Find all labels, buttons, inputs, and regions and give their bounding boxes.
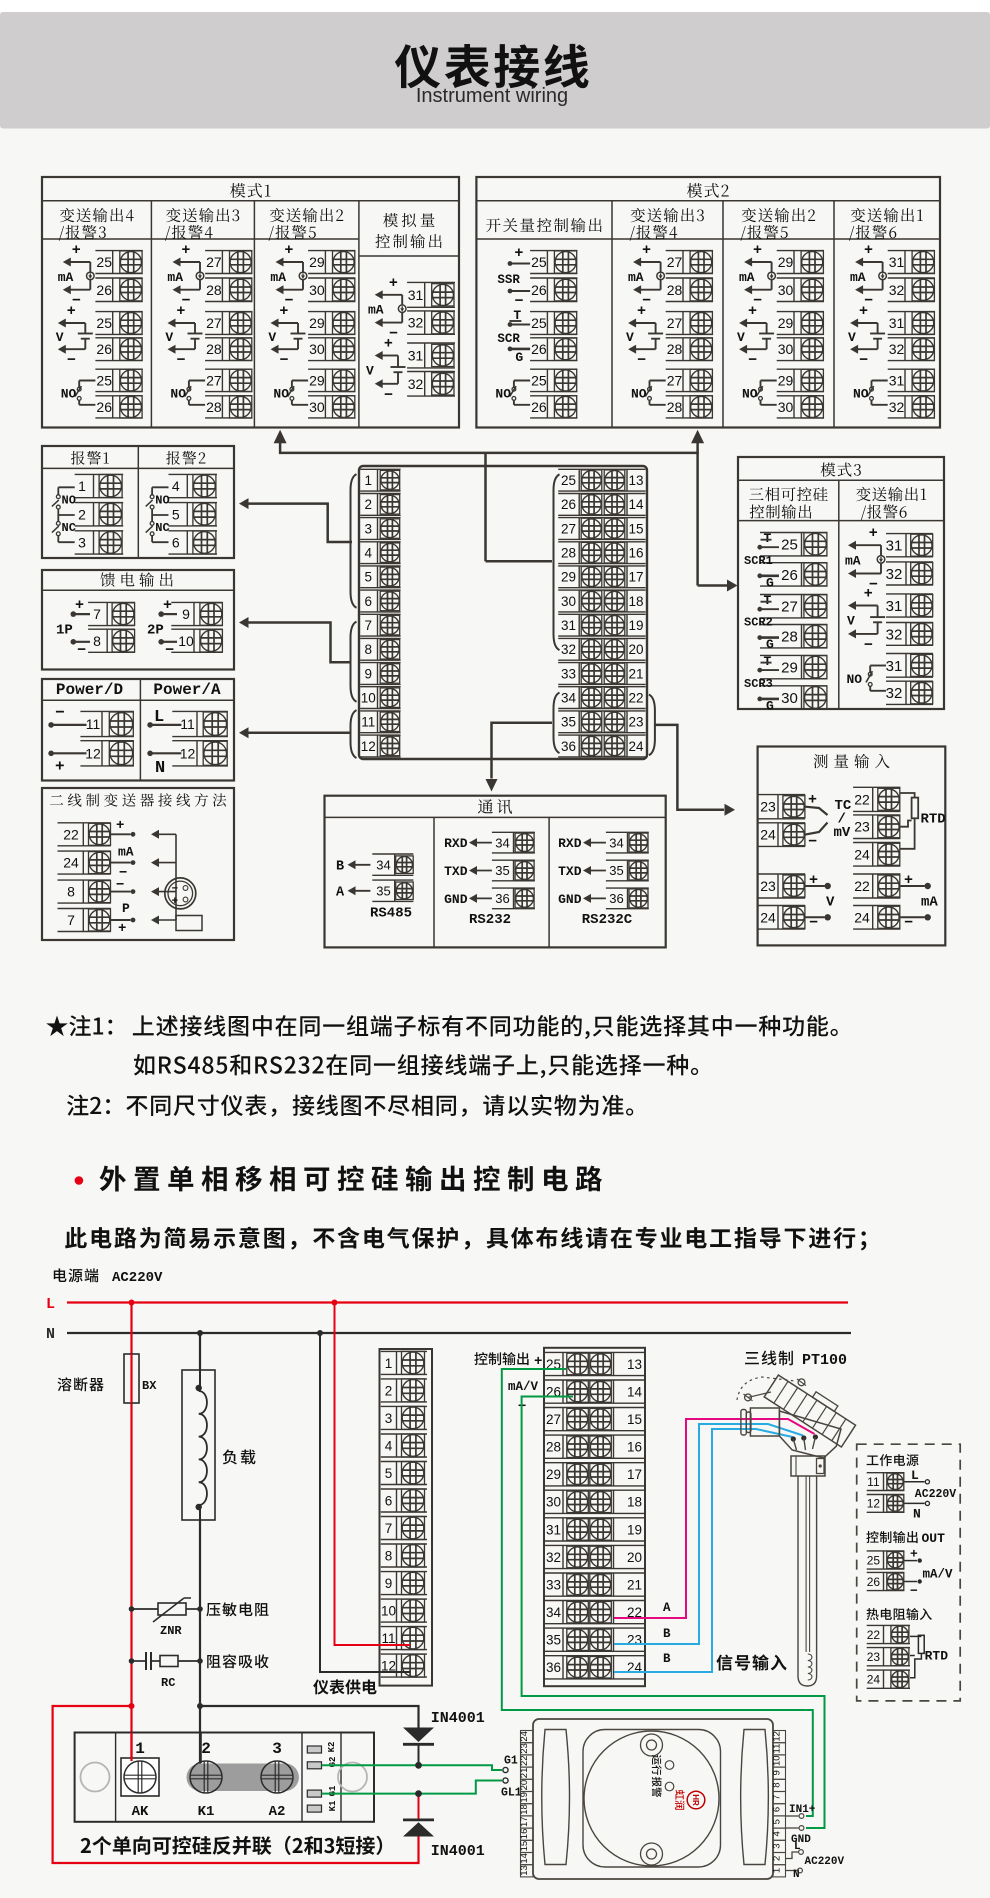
svg-text:16: 16 [627, 1440, 642, 1455]
svg-text:1: 1 [135, 1740, 145, 1758]
svg-text:28: 28 [546, 1440, 561, 1455]
svg-text:−: − [55, 704, 65, 722]
svg-text:29: 29 [781, 660, 798, 677]
svg-text:8: 8 [365, 642, 373, 657]
svg-text:32: 32 [408, 376, 424, 392]
svg-text:SSR: SSR [497, 273, 520, 287]
svg-text:7: 7 [385, 1521, 393, 1536]
svg-text:−: − [67, 352, 76, 369]
svg-text:5: 5 [365, 570, 373, 585]
svg-text:NO: NO [62, 494, 76, 508]
svg-text:G: G [766, 575, 774, 590]
svg-text:22: 22 [854, 878, 870, 894]
svg-text:4: 4 [365, 546, 373, 561]
svg-text:27: 27 [781, 599, 798, 616]
svg-text:−: − [808, 834, 817, 851]
svg-text:32: 32 [889, 282, 905, 298]
svg-text:+: + [808, 792, 817, 809]
svg-text:25: 25 [531, 315, 547, 331]
svg-text:−: − [637, 352, 646, 369]
svg-text:NO: NO [170, 387, 186, 402]
svg-text:26: 26 [867, 1575, 881, 1589]
svg-text:14: 14 [519, 1853, 530, 1864]
svg-text:29: 29 [309, 254, 325, 270]
svg-text:28: 28 [781, 629, 798, 646]
svg-text:2: 2 [365, 497, 373, 512]
svg-text:4: 4 [772, 1831, 783, 1836]
svg-text:+: + [163, 597, 172, 614]
svg-text:−: − [904, 915, 913, 932]
svg-text:8: 8 [772, 1782, 783, 1787]
svg-text:V: V [626, 330, 634, 345]
svg-text:B: B [663, 1627, 671, 1641]
svg-text:RTD: RTD [921, 812, 946, 828]
svg-text:12: 12 [85, 745, 101, 761]
svg-text:18: 18 [519, 1804, 530, 1815]
svg-text:6: 6 [772, 1807, 783, 1812]
svg-text:AK: AK [132, 1804, 149, 1820]
svg-text:19: 19 [628, 618, 643, 633]
svg-text:31: 31 [408, 287, 424, 303]
svg-text:1: 1 [78, 478, 86, 494]
svg-text:2: 2 [78, 506, 86, 522]
svg-text:8: 8 [93, 633, 101, 649]
svg-text:A2: A2 [269, 1804, 286, 1820]
svg-text:T: T [764, 654, 772, 669]
svg-text:NC: NC [155, 521, 169, 535]
svg-text:31: 31 [561, 618, 576, 633]
svg-text:35: 35 [546, 1633, 561, 1648]
svg-text:31: 31 [886, 538, 903, 555]
svg-text:+: + [642, 242, 651, 259]
svg-text:mV: mV [834, 825, 851, 841]
svg-text:Power/A: Power/A [153, 681, 221, 699]
svg-text:11: 11 [86, 716, 101, 732]
svg-text:ZNR: ZNR [160, 1624, 182, 1638]
svg-text:32: 32 [408, 315, 424, 331]
svg-text:25: 25 [531, 254, 547, 270]
svg-text:27: 27 [206, 315, 222, 331]
svg-text:26: 26 [561, 497, 576, 512]
svg-text:G: G [766, 699, 774, 714]
svg-text:25: 25 [781, 537, 798, 554]
svg-text:27: 27 [206, 372, 222, 388]
svg-text:17: 17 [628, 570, 643, 585]
svg-text:22: 22 [628, 691, 643, 706]
svg-text:L: L [911, 1468, 919, 1483]
svg-text:11: 11 [772, 1744, 783, 1754]
svg-text:TXD: TXD [558, 864, 582, 879]
svg-text:29: 29 [546, 1467, 561, 1482]
svg-text:29: 29 [778, 254, 794, 270]
svg-text:+: + [75, 597, 84, 614]
svg-text:24: 24 [628, 739, 644, 754]
svg-text:7: 7 [772, 1795, 783, 1800]
svg-text:13: 13 [519, 1865, 530, 1876]
svg-text:SCR2: SCR2 [744, 616, 773, 630]
svg-text:24: 24 [760, 909, 776, 925]
svg-text:19: 19 [519, 1792, 530, 1803]
svg-text:1: 1 [385, 1356, 393, 1371]
svg-text:2: 2 [201, 1740, 211, 1758]
svg-text:IN4001: IN4001 [431, 1843, 485, 1860]
svg-text:21: 21 [519, 1768, 530, 1779]
svg-text:−: − [279, 352, 288, 369]
svg-text:+: + [859, 303, 868, 320]
svg-text:+: + [384, 336, 393, 353]
svg-text:31: 31 [889, 315, 905, 331]
svg-text:T: T [764, 531, 772, 546]
svg-text:G: G [515, 350, 523, 365]
svg-text:9: 9 [385, 1576, 393, 1591]
svg-text:V: V [366, 364, 374, 379]
svg-text:V: V [848, 330, 856, 345]
svg-text:mA: mA [167, 270, 183, 285]
svg-text:RXD: RXD [558, 836, 582, 851]
svg-text:+: + [55, 758, 65, 776]
svg-text:7: 7 [93, 606, 101, 622]
svg-text:36: 36 [495, 891, 509, 906]
svg-text:5: 5 [172, 506, 180, 522]
svg-text:RS232: RS232 [469, 912, 511, 928]
svg-text:+: + [181, 242, 190, 259]
svg-text:V: V [847, 614, 855, 629]
svg-text:AC220V: AC220V [112, 1270, 163, 1286]
svg-text:N: N [913, 1507, 921, 1522]
svg-text:32: 32 [886, 566, 903, 583]
svg-text:−: − [910, 1584, 918, 1599]
svg-text:RXD: RXD [444, 836, 468, 851]
svg-text:18: 18 [627, 1495, 642, 1510]
svg-text:NO: NO [631, 387, 647, 402]
svg-text:−: − [384, 387, 393, 404]
svg-text:12: 12 [867, 1497, 881, 1511]
svg-text:22: 22 [63, 826, 79, 842]
svg-text:10: 10 [772, 1755, 783, 1766]
svg-text:27: 27 [667, 372, 683, 388]
svg-text:12: 12 [180, 745, 196, 761]
svg-text:RC: RC [161, 1676, 175, 1690]
svg-text:V: V [268, 330, 276, 345]
svg-text:V: V [826, 895, 835, 911]
svg-text:SCR1: SCR1 [744, 554, 773, 568]
svg-text:+: + [869, 525, 878, 542]
svg-text:28: 28 [206, 341, 222, 357]
svg-text:Instrument wiring: Instrument wiring [416, 85, 568, 107]
svg-text:mA: mA [368, 303, 384, 318]
svg-text:20: 20 [519, 1780, 530, 1791]
svg-text:NO: NO [495, 387, 511, 402]
svg-text:BX: BX [142, 1379, 157, 1393]
svg-text:−: − [809, 915, 818, 932]
svg-text:mA/V: mA/V [923, 1568, 954, 1582]
svg-text:27: 27 [667, 254, 683, 270]
svg-text:13: 13 [628, 473, 643, 488]
svg-text:21: 21 [628, 666, 643, 681]
svg-text:30: 30 [309, 399, 325, 415]
svg-text:mA: mA [921, 895, 938, 911]
svg-text:18: 18 [628, 594, 643, 609]
svg-text:K2: K2 [327, 1742, 337, 1753]
svg-text:17: 17 [627, 1467, 642, 1482]
svg-text:K1: K1 [328, 1800, 338, 1811]
svg-text:23: 23 [760, 799, 776, 815]
svg-text:9: 9 [365, 666, 373, 681]
svg-text:3: 3 [78, 535, 86, 551]
svg-text:30: 30 [546, 1495, 561, 1510]
svg-text:32: 32 [546, 1550, 561, 1565]
svg-text:33: 33 [561, 666, 576, 681]
svg-text:25: 25 [561, 473, 576, 488]
svg-text:3: 3 [772, 1843, 783, 1848]
svg-text:9: 9 [772, 1770, 783, 1775]
svg-text:9: 9 [182, 606, 190, 622]
svg-text:27: 27 [546, 1412, 561, 1427]
svg-text:RS485: RS485 [370, 906, 412, 922]
svg-text:30: 30 [309, 282, 325, 298]
svg-text:7: 7 [67, 912, 75, 928]
svg-text:26: 26 [781, 567, 798, 584]
svg-text:G: G [766, 637, 774, 652]
svg-text:13: 13 [627, 1357, 642, 1372]
svg-text:23: 23 [867, 1650, 881, 1664]
svg-text:GND: GND [444, 892, 468, 907]
svg-text:24: 24 [867, 1673, 881, 1687]
svg-text:+: + [637, 303, 646, 320]
svg-text:7: 7 [365, 618, 373, 633]
svg-text:25: 25 [96, 315, 112, 331]
svg-text:30: 30 [778, 341, 794, 357]
svg-text:35: 35 [609, 863, 623, 878]
svg-text:A: A [336, 885, 345, 900]
svg-text:K1: K1 [198, 1804, 215, 1820]
svg-text:11: 11 [867, 1475, 880, 1489]
svg-text:B: B [663, 1652, 671, 1666]
svg-text:mA/V: mA/V [508, 1380, 539, 1394]
svg-text:6: 6 [365, 594, 373, 609]
svg-text:−: − [864, 637, 873, 654]
svg-text:14: 14 [628, 497, 644, 512]
svg-text:RS232C: RS232C [582, 912, 633, 928]
svg-text:SCR: SCR [497, 332, 520, 346]
svg-text:mA: mA [739, 270, 755, 285]
svg-text:24: 24 [760, 827, 776, 843]
svg-text:24: 24 [519, 1731, 530, 1742]
svg-text:+: + [116, 818, 124, 834]
svg-text:Power/D: Power/D [56, 681, 123, 699]
svg-text:11: 11 [361, 715, 375, 730]
svg-text:B: B [336, 859, 344, 874]
svg-text:32: 32 [889, 399, 905, 415]
svg-text:36: 36 [561, 739, 576, 754]
svg-text:SCR3: SCR3 [744, 677, 773, 691]
svg-text:11: 11 [180, 716, 195, 732]
svg-text:31: 31 [886, 658, 903, 675]
svg-text:29: 29 [309, 372, 325, 388]
svg-text:RTD: RTD [925, 1649, 949, 1664]
svg-text:P: P [122, 901, 130, 916]
svg-text:24: 24 [854, 909, 870, 925]
svg-text:PT100: PT100 [802, 1352, 847, 1369]
svg-text:+: + [534, 1354, 542, 1370]
svg-text:V: V [737, 330, 745, 345]
svg-text:19: 19 [627, 1522, 642, 1537]
svg-text:34: 34 [495, 835, 509, 850]
svg-text:3: 3 [385, 1411, 393, 1426]
svg-text:31: 31 [886, 598, 903, 615]
svg-text:32: 32 [886, 685, 903, 702]
svg-text:+: + [284, 242, 293, 259]
svg-text:12: 12 [361, 739, 376, 754]
svg-text:15: 15 [628, 521, 643, 536]
svg-text:NO: NO [847, 672, 863, 687]
svg-text:NO: NO [155, 494, 169, 508]
svg-text:IN4001: IN4001 [431, 1710, 485, 1727]
svg-text:28: 28 [667, 399, 683, 415]
svg-text:+: + [279, 303, 288, 320]
svg-text:+: + [910, 1547, 918, 1562]
svg-text:11: 11 [381, 1631, 395, 1646]
svg-text:2: 2 [385, 1383, 393, 1398]
svg-text:NC: NC [62, 521, 76, 535]
svg-text:14: 14 [627, 1384, 643, 1399]
svg-text:TXD: TXD [444, 864, 468, 879]
svg-text:NO: NO [742, 387, 758, 402]
svg-text:28: 28 [561, 546, 576, 561]
svg-text:26: 26 [531, 282, 547, 298]
svg-text:30: 30 [781, 690, 798, 707]
svg-text:+: + [176, 303, 185, 320]
svg-text:mA: mA [628, 270, 644, 285]
svg-text:26: 26 [531, 341, 547, 357]
svg-text:29: 29 [778, 372, 794, 388]
svg-text:26: 26 [96, 399, 112, 415]
svg-text:+: + [172, 896, 179, 908]
svg-text:26: 26 [96, 282, 112, 298]
svg-text:L: L [46, 1296, 55, 1313]
svg-text:36: 36 [546, 1660, 561, 1675]
svg-text:31: 31 [408, 348, 424, 364]
svg-text:V: V [56, 330, 64, 345]
svg-text:mA: mA [118, 845, 134, 860]
svg-text:+: + [72, 242, 81, 259]
svg-text:34: 34 [609, 835, 623, 850]
svg-text:28: 28 [667, 341, 683, 357]
svg-text:5: 5 [385, 1466, 393, 1481]
svg-text:G1: G1 [328, 1785, 338, 1796]
svg-text:−: − [859, 352, 868, 369]
svg-text:20: 20 [628, 642, 643, 657]
svg-text:34: 34 [561, 691, 577, 706]
svg-text:29: 29 [309, 315, 325, 331]
svg-text:29: 29 [561, 570, 576, 585]
svg-text:2P: 2P [147, 623, 164, 639]
svg-text:10: 10 [178, 633, 194, 649]
svg-text:12: 12 [772, 1731, 783, 1742]
svg-text:AC220V: AC220V [915, 1488, 957, 1501]
svg-text:31: 31 [889, 254, 905, 270]
svg-text:28: 28 [206, 399, 222, 415]
svg-text:G1: G1 [504, 1755, 518, 1768]
svg-text:+: + [118, 921, 126, 937]
svg-text:2: 2 [772, 1856, 783, 1861]
svg-text:23: 23 [628, 715, 643, 730]
svg-text:22: 22 [854, 791, 870, 807]
svg-text:mA: mA [58, 270, 74, 285]
svg-text:23: 23 [854, 819, 870, 835]
svg-text:24: 24 [854, 846, 870, 862]
svg-text:−: − [165, 642, 174, 659]
svg-text:21: 21 [627, 1577, 642, 1592]
svg-text:23: 23 [627, 1633, 642, 1648]
svg-text:4: 4 [172, 478, 180, 494]
svg-text:GND: GND [558, 892, 582, 907]
svg-text:35: 35 [495, 863, 509, 878]
svg-text:NO: NO [61, 387, 77, 402]
svg-text:HR: HR [691, 1794, 700, 1806]
svg-text:NO: NO [273, 387, 289, 402]
svg-text:25: 25 [96, 254, 112, 270]
svg-text:1P: 1P [56, 623, 73, 639]
svg-text:−: − [77, 642, 86, 659]
svg-text:8: 8 [67, 884, 75, 900]
svg-text:33: 33 [546, 1577, 561, 1592]
svg-text:6: 6 [385, 1493, 393, 1508]
svg-text:25: 25 [531, 372, 547, 388]
svg-text:8: 8 [385, 1548, 393, 1563]
svg-text:N: N [46, 1326, 55, 1343]
svg-text:15: 15 [519, 1841, 530, 1852]
svg-text:32: 32 [889, 341, 905, 357]
svg-text:+: + [748, 303, 757, 320]
svg-text:OUT: OUT [922, 1531, 946, 1546]
svg-text:+: + [753, 242, 762, 259]
svg-text:17: 17 [519, 1816, 530, 1827]
svg-text:T: T [764, 593, 772, 608]
svg-text:3: 3 [272, 1740, 282, 1758]
svg-text:+: + [864, 586, 873, 603]
svg-text:mA: mA [845, 553, 861, 568]
svg-text:27: 27 [667, 315, 683, 331]
svg-text:34: 34 [376, 857, 390, 872]
svg-text:23: 23 [519, 1743, 530, 1754]
svg-text:32: 32 [886, 626, 903, 643]
svg-text:25: 25 [867, 1553, 881, 1567]
svg-text:L: L [794, 1841, 801, 1853]
svg-text:23: 23 [760, 878, 776, 894]
svg-text:mA: mA [270, 270, 286, 285]
svg-text:25: 25 [96, 372, 112, 388]
svg-text:16: 16 [628, 546, 643, 561]
svg-text:32: 32 [561, 642, 576, 657]
svg-text:26: 26 [96, 341, 112, 357]
svg-text:−: − [116, 878, 124, 894]
svg-text:1: 1 [365, 473, 373, 488]
svg-text:3: 3 [365, 521, 373, 536]
svg-text:28: 28 [667, 282, 683, 298]
svg-text:−: − [172, 884, 179, 896]
svg-text:AC220V: AC220V [805, 1856, 845, 1868]
svg-text:28: 28 [206, 282, 222, 298]
svg-text:16: 16 [519, 1829, 530, 1840]
svg-text:34: 34 [546, 1605, 562, 1620]
svg-text:−: − [748, 352, 757, 369]
svg-text:A: A [663, 1601, 671, 1615]
svg-text:31: 31 [546, 1522, 561, 1537]
svg-text:5: 5 [772, 1819, 783, 1824]
svg-text:35: 35 [561, 715, 576, 730]
svg-text:+: + [389, 275, 398, 292]
